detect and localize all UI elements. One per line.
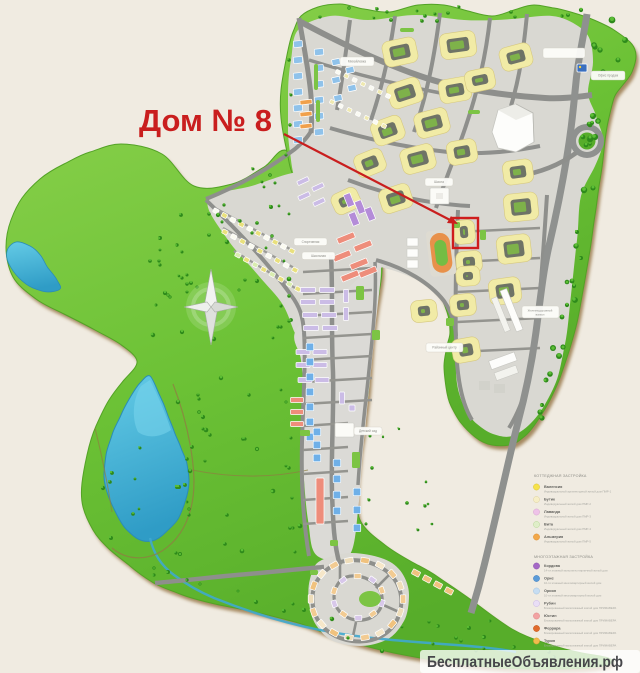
svg-text:Блокированный малоэтажный жило: Блокированный малоэтажный жилой дом ПРИМ…: [544, 631, 616, 635]
svg-text:Феррара: Феррара: [544, 626, 561, 630]
svg-text:Юстин: Юстин: [544, 614, 557, 618]
svg-text:Альмерия: Альмерия: [544, 535, 563, 539]
svg-text:МНОГОЭТАЖНАЯ ЗАСТРОЙКА: МНОГОЭТАЖНАЯ ЗАСТРОЙКА: [534, 555, 593, 559]
svg-text:Районный центр: Районный центр: [432, 346, 457, 350]
svg-text:10-ти этажный многоквартирный: 10-ти этажный многоквартирный жилой дом: [544, 581, 601, 585]
svg-text:Блокированный малоэтажный жило: Блокированный малоэтажный жилой дом ПРИМ…: [544, 619, 616, 623]
svg-text:Индивидуальный жилой дом ПМР-3: Индивидуальный жилой дом ПМР-3: [544, 515, 591, 519]
svg-text:Орис: Орис: [544, 576, 554, 580]
svg-text:Бутик: Бутик: [544, 497, 555, 501]
svg-text:Индивидуальный жилой дом ПМР-2: Индивидуальный жилой дом ПМР-2: [544, 502, 591, 506]
svg-text:Вита: Вита: [544, 522, 554, 526]
svg-text:Офис продаж: Офис продаж: [598, 74, 619, 78]
svg-text:Блокированный малоэтажный жило: Блокированный малоэтажный жилой дом ПРИМ…: [544, 606, 616, 610]
svg-text:Орион: Орион: [544, 589, 557, 593]
svg-text:Школьная: Школьная: [311, 254, 326, 258]
svg-text:Лаванда: Лаванда: [544, 510, 561, 514]
svg-text:вокзал: вокзал: [536, 313, 545, 317]
svg-text:КОТТЕДЖНАЯ ЗАСТРОЙКА: КОТТЕДЖНАЯ ЗАСТРОЙКА: [534, 474, 587, 478]
svg-text:Михайловка: Михайловка: [348, 60, 366, 64]
svg-text:Спортивная: Спортивная: [302, 240, 320, 244]
svg-text:Рубин: Рубин: [544, 601, 556, 605]
svg-text:Детский сад: Детский сад: [359, 429, 377, 433]
svg-text:Кордова: Кордова: [544, 564, 561, 568]
svg-text:Школа: Школа: [434, 180, 444, 184]
svg-text:Дом № 8: Дом № 8: [139, 103, 272, 138]
svg-text:14-ти этажный монолитно-кирпич: 14-ти этажный монолитно-кирпичный жилой …: [544, 569, 608, 573]
svg-text:БесплатныеОбъявления.рф: БесплатныеОбъявления.рф: [427, 654, 623, 671]
svg-text:Индивидуальный жилой дом ПМР-4: Индивидуальный жилой дом ПМР-4: [544, 527, 591, 531]
svg-text:Блокированный малоэтажный жило: Блокированный малоэтажный жилой дом ПРИМ…: [544, 644, 616, 648]
svg-text:10-ти этажный многоквартирный: 10-ти этажный многоквартирный жилой дом: [544, 594, 601, 598]
svg-text:Турин: Турин: [544, 639, 556, 643]
svg-text:Индивидуальный архитектурный ж: Индивидуальный архитектурный жилой дом П…: [544, 490, 612, 494]
svg-text:Индивидуальный жилой дом ПМР-5: Индивидуальный жилой дом ПМР-5: [544, 540, 591, 544]
svg-text:Валенсия: Валенсия: [544, 485, 562, 489]
